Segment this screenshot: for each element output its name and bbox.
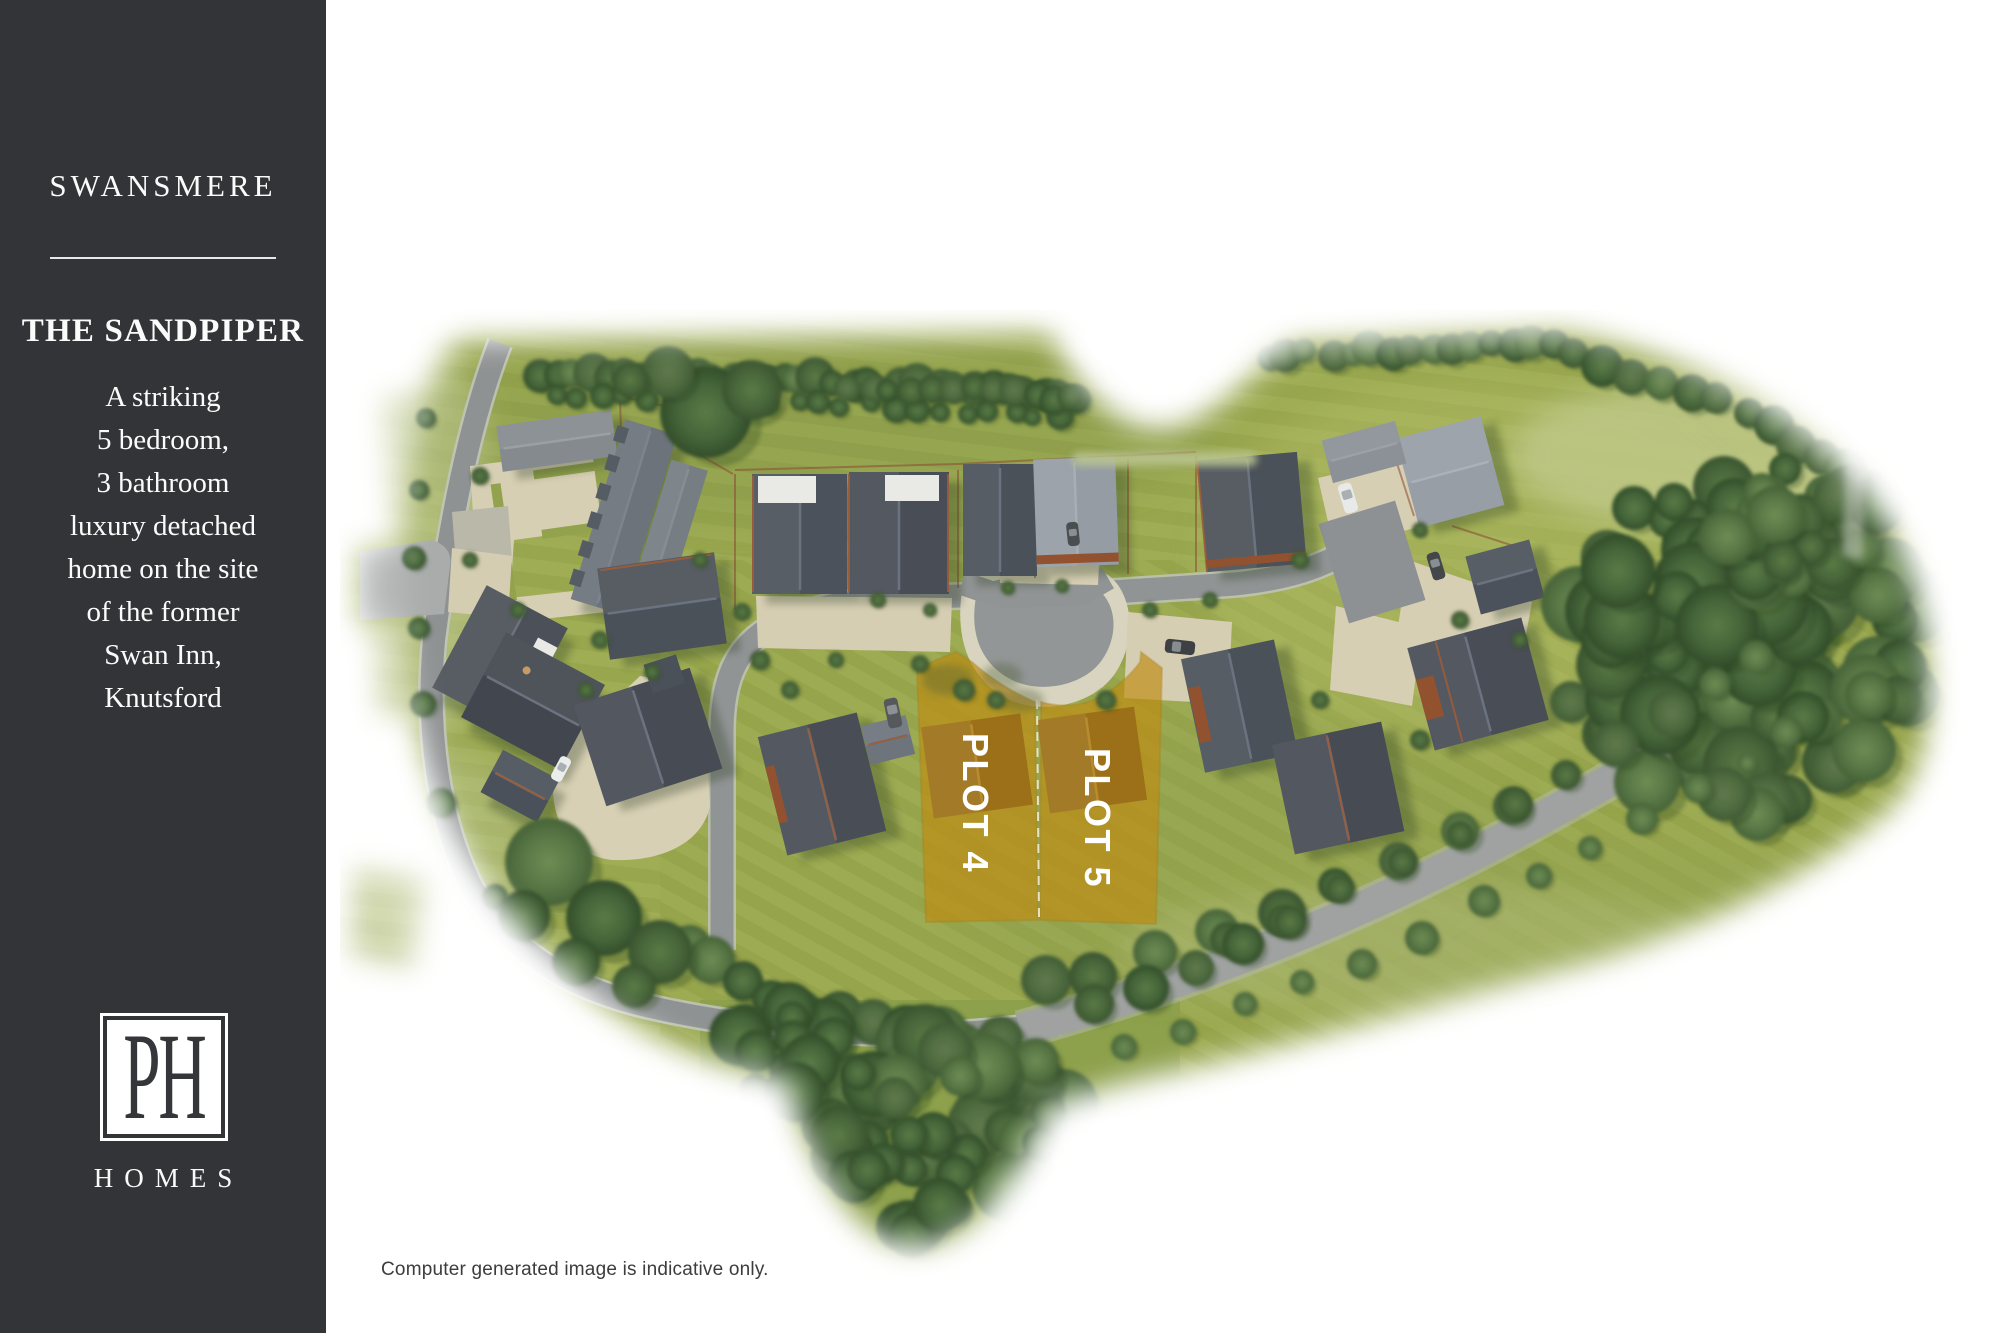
svg-text:PLOT 5: PLOT 5 [1077, 748, 1118, 889]
svg-text:PLOT 4: PLOT 4 [955, 733, 996, 874]
